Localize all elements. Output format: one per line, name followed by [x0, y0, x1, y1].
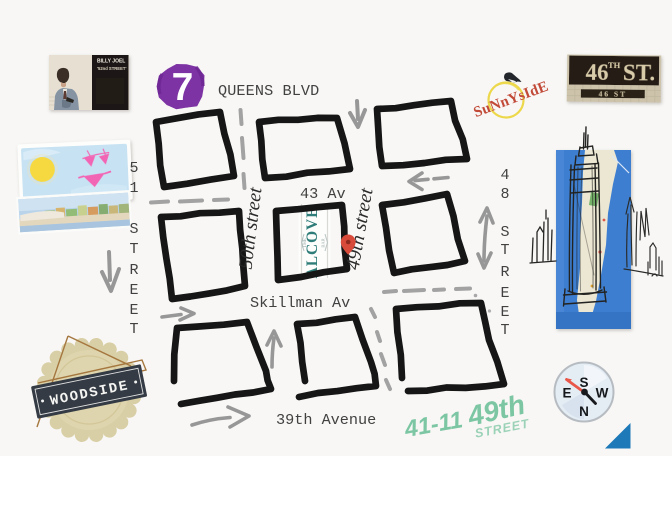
svg-text:E: E [129, 282, 138, 299]
svg-text:S: S [579, 375, 588, 390]
svg-text:QUEENS BLVD: QUEENS BLVD [218, 82, 319, 100]
svg-text:ST.: ST. [623, 60, 655, 85]
svg-text:E: E [500, 304, 509, 321]
svg-text:46 ST: 46 ST [599, 89, 628, 98]
svg-text:BILLY JOEL: BILLY JOEL [97, 59, 125, 65]
svg-text:1: 1 [129, 180, 138, 197]
svg-text:S: S [500, 224, 509, 241]
svg-text:T: T [500, 322, 509, 339]
svg-text:E: E [129, 302, 138, 319]
svg-text:TH: TH [608, 60, 621, 70]
svg-text:N: N [579, 404, 589, 419]
svg-text:46: 46 [585, 60, 608, 85]
svg-text:ALCOVE: ALCOVE [304, 207, 321, 279]
svg-text:7: 7 [172, 66, 194, 109]
svg-text:4: 4 [500, 167, 509, 184]
svg-text:E: E [562, 386, 571, 401]
svg-text:S: S [129, 221, 138, 238]
svg-text:8: 8 [500, 186, 509, 203]
svg-text:E: E [500, 285, 509, 302]
svg-text:'52nd STREET': '52nd STREET' [97, 66, 126, 71]
svg-text:39th Avenue: 39th Avenue [276, 411, 376, 429]
svg-text:R: R [129, 262, 138, 279]
svg-text:5: 5 [129, 160, 138, 177]
svg-text:Skillman Av: Skillman Av [250, 294, 350, 312]
svg-text:T: T [129, 321, 138, 338]
svg-text:T: T [500, 242, 509, 259]
svg-text:W: W [596, 386, 609, 401]
svg-text:R: R [500, 264, 509, 281]
svg-text:43 Av: 43 Av [300, 185, 346, 203]
svg-text:T: T [129, 241, 138, 258]
svg-text:BAR: BAR [321, 238, 326, 247]
